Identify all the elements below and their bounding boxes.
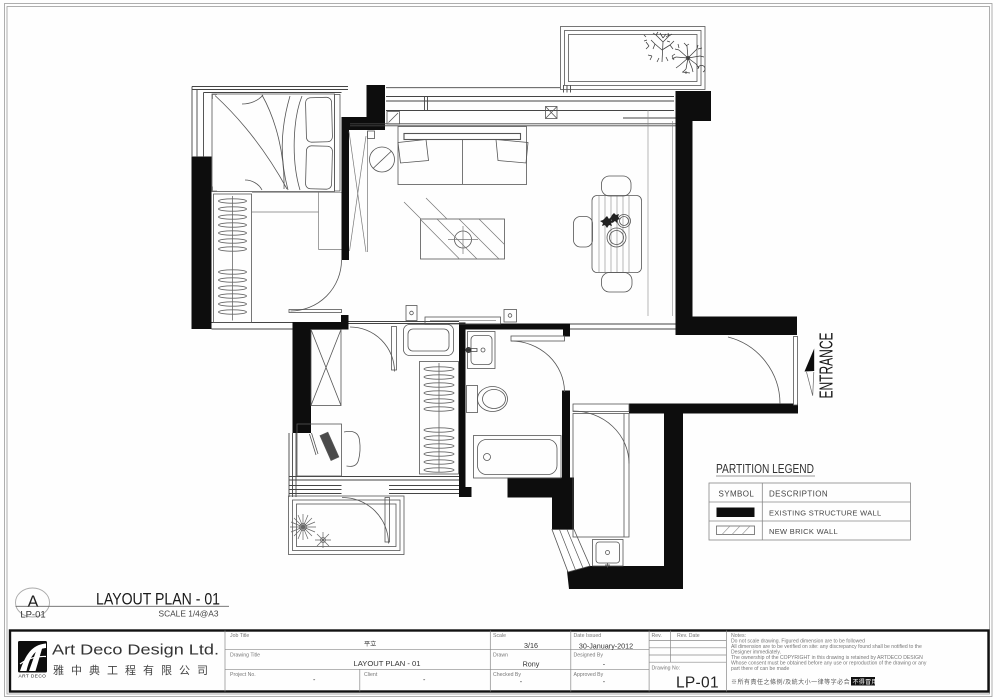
svg-text:Scale: Scale	[493, 633, 506, 639]
svg-text:-: -	[603, 677, 606, 686]
svg-text:Job Title: Job Title	[230, 633, 249, 639]
svg-text:Date Issued: Date Issued	[574, 633, 602, 639]
svg-text:Drawing No:: Drawing No:	[652, 666, 681, 672]
svg-text:LAYOUT PLAN - 01: LAYOUT PLAN - 01	[96, 591, 220, 609]
svg-text:DESCRIPTION: DESCRIPTION	[769, 490, 828, 499]
svg-text:EXISTING STRUCTURE WALL: EXISTING STRUCTURE WALL	[769, 509, 881, 518]
svg-text:ENTRANCE: ENTRANCE	[816, 333, 837, 399]
svg-text:Checked By: Checked By	[493, 672, 521, 678]
svg-text:Project No.: Project No.	[230, 672, 256, 678]
svg-text:雅中典工程有限公司: 雅中典工程有限公司	[53, 663, 215, 677]
svg-text:Rony: Rony	[523, 660, 540, 669]
svg-text:平立: 平立	[364, 640, 376, 648]
svg-text:SYMBOL: SYMBOL	[719, 490, 755, 499]
svg-text:LP-01: LP-01	[676, 675, 719, 692]
svg-text:PARTITION LEGEND: PARTITION LEGEND	[716, 462, 814, 476]
svg-text:不得冒用: 不得冒用	[853, 678, 878, 686]
svg-text:ART DECO: ART DECO	[19, 674, 47, 680]
svg-text:3/16: 3/16	[524, 641, 538, 650]
svg-text:-: -	[423, 675, 426, 684]
svg-text:-: -	[313, 675, 316, 684]
svg-text:Drawing Title: Drawing Title	[230, 653, 260, 659]
svg-text:NEW BRICK WALL: NEW BRICK WALL	[769, 527, 838, 536]
svg-text:SCALE 1/4@A3: SCALE 1/4@A3	[159, 609, 219, 619]
svg-text:30-January-2012: 30-January-2012	[579, 642, 633, 651]
svg-text:A: A	[27, 593, 38, 611]
svg-text:Approved By: Approved By	[574, 672, 604, 678]
svg-text:Rev.: Rev.	[652, 633, 662, 639]
svg-text:part there of can be made: part there of can be made	[731, 666, 789, 672]
svg-text:Drawn: Drawn	[493, 653, 508, 659]
svg-text:-: -	[603, 660, 606, 669]
svg-text:Rev. Date: Rev. Date	[677, 633, 700, 639]
svg-text:LAYOUT PLAN - 01: LAYOUT PLAN - 01	[354, 659, 421, 668]
svg-text:LP-01: LP-01	[20, 610, 45, 621]
svg-text:Client: Client	[364, 672, 378, 678]
svg-text:Designed By: Designed By	[574, 653, 604, 659]
svg-text:※所有責任之條例/及統大小一律等字必合: ※所有責任之條例/及統大小一律等字必合	[731, 678, 850, 686]
svg-text:-: -	[520, 677, 523, 686]
svg-text:Art Deco Design Ltd.: Art Deco Design Ltd.	[52, 642, 219, 659]
